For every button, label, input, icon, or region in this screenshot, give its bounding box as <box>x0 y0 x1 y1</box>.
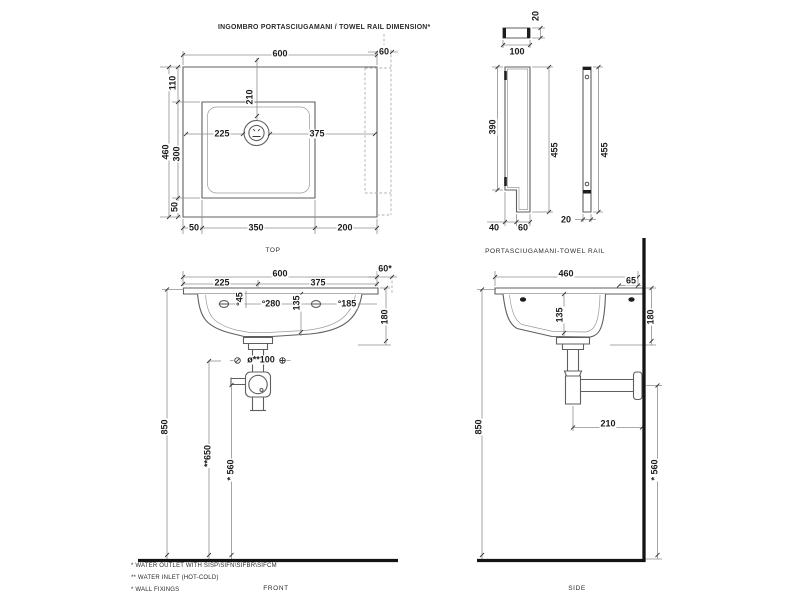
dim-side-outlet-height: * 560 <box>651 458 660 481</box>
dim-rail-foot-right: 60 <box>517 224 529 233</box>
dim-front-outlet-height: * 560 <box>227 458 236 481</box>
dim-rail-foot-left: 40 <box>488 224 500 233</box>
dim-rail-face-height: 390 <box>489 118 498 135</box>
dim-front-rim-height: 850 <box>161 418 170 435</box>
dim-top-basin-depth: 300 <box>173 145 182 162</box>
dim-rail-thickness: 20 <box>532 10 541 22</box>
front-view-label: FRONT <box>263 586 288 593</box>
dim-top-right-margin: 200 <box>336 224 353 233</box>
footnote-water-inlet: ** WATER INLET (HOT-COLD) <box>131 575 219 581</box>
top-view <box>160 34 398 234</box>
dim-front-inlet-height: **650 <box>204 444 213 468</box>
wall-escutcheon <box>634 372 643 400</box>
dim-front-edge-height: 180 <box>381 308 390 325</box>
footnote-wall-fixings: * WALL FIXINGS <box>131 587 179 593</box>
front-view <box>138 271 398 561</box>
dim-side-trap-offset: 210 <box>599 420 616 429</box>
dim-front-tap-hole: °45 <box>236 291 245 307</box>
dim-top-basin-width: 350 <box>247 224 264 233</box>
dim-top-rail: 60 <box>378 48 390 57</box>
dim-rail-side-height: 455 <box>601 141 610 158</box>
dim-rail-width: 100 <box>508 48 525 57</box>
dim-rail-side-thickness: 20 <box>560 216 572 225</box>
dim-top-tap-left: 225 <box>213 130 230 139</box>
dim-top-width: 600 <box>271 50 288 59</box>
sheet-title: INGOMBRO PORTASCIUGAMANI / TOWEL RAIL DI… <box>218 25 430 32</box>
side-view <box>477 238 662 561</box>
countertop-side <box>495 288 643 294</box>
dim-top-tap-back: 210 <box>246 88 255 105</box>
towel-rail-label: PORTASCIUGAMANI-TOWEL RAIL <box>485 249 605 256</box>
dim-side-edge-height: 180 <box>647 308 656 325</box>
drain-and-siphon <box>231 338 273 411</box>
dim-front-rail: 60* <box>377 265 393 274</box>
countertop-outline-top <box>183 67 377 217</box>
dim-front-inlet-side: °185 <box>337 300 358 309</box>
dim-front-tap-right: 375 <box>309 279 326 288</box>
technical-drawing-sheet: INGOMBRO PORTASCIUGAMANI / TOWEL RAIL DI… <box>0 0 800 600</box>
dim-side-depth: 460 <box>557 270 574 279</box>
dim-side-rim-height: 850 <box>475 418 484 435</box>
rail-top-section <box>503 28 530 38</box>
countertop-front <box>184 288 379 294</box>
dim-rail-height: 455 <box>551 141 560 158</box>
siphon-side <box>557 338 643 405</box>
top-view-label: TOP <box>265 248 280 255</box>
rail-fixing-mark <box>504 71 507 80</box>
dim-top-depth: 460 <box>162 143 171 160</box>
dim-top-back-offset: 110 <box>169 75 178 92</box>
dim-side-wall-offset: 65 <box>625 277 637 286</box>
side-view-label: SIDE <box>568 586 586 593</box>
dim-front-bowl-depth: 135 <box>293 294 302 311</box>
fixing-hole-side <box>520 297 526 302</box>
dim-side-bowl-depth: 135 <box>556 306 565 323</box>
dim-front-inlet-span: °280 <box>261 300 282 309</box>
dim-top-front-offset: 50 <box>171 201 180 213</box>
dim-top-left-margin: 50 <box>188 224 200 233</box>
dim-front-drain: ø**100 <box>246 356 276 365</box>
dim-top-tap-right: 375 <box>308 130 325 139</box>
rail-plate-outline <box>505 67 530 212</box>
dim-front-width: 600 <box>271 270 288 279</box>
dim-front-tap-left: 225 <box>213 279 230 288</box>
drawing-linework <box>0 0 800 600</box>
fixing-hole-side <box>628 297 634 302</box>
footnote-water-outlet: * WATER OUTLET WITH SISP\SIFN\SIFBR\SIFC… <box>131 563 277 569</box>
rail-fixing-mark <box>504 177 507 186</box>
